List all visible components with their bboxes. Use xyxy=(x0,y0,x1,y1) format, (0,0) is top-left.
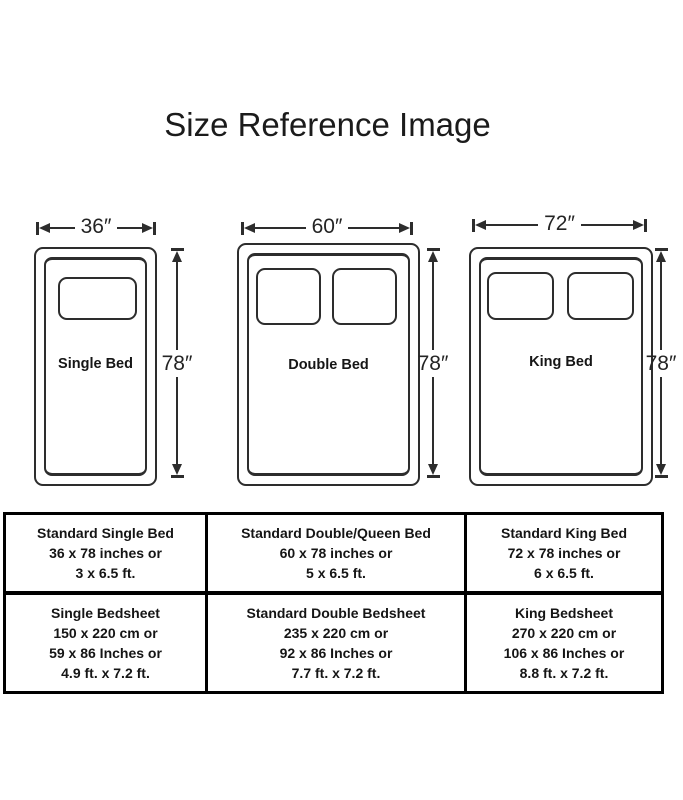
cell-line: King Bedsheet xyxy=(469,603,659,623)
arrowhead-left-icon xyxy=(39,223,50,233)
height-dimension-label-single: 78″ xyxy=(162,350,193,377)
cell-line: 7.7 ft. x 7.2 ft. xyxy=(210,663,462,683)
dimension-line xyxy=(660,377,662,465)
cell-line: 8.8 ft. x 7.2 ft. xyxy=(469,663,659,683)
table-row-bedsheets: Single Bedsheet 150 x 220 cm or 59 x 86 … xyxy=(5,593,663,693)
arrowhead-left-icon xyxy=(475,220,486,230)
size-reference-diagram: Size Reference Image 36″ 60″ 72″ Single … xyxy=(0,0,683,800)
height-dimension-arrow-king: 78″ xyxy=(643,248,679,478)
size-table: Standard Single Bed 36 x 78 inches or 3 … xyxy=(3,512,664,694)
cell-line: Standard King Bed xyxy=(469,523,659,543)
arrowhead-down-icon xyxy=(172,464,182,475)
dimension-line xyxy=(348,227,399,229)
cell-line: 106 x 86 Inches or xyxy=(469,643,659,663)
bed-name-label: Single Bed xyxy=(36,356,155,372)
table-cell-standard-king: Standard King Bed 72 x 78 inches or 6 x … xyxy=(466,514,663,594)
cell-line: 92 x 86 Inches or xyxy=(210,643,462,663)
bed-figure-king: King Bed xyxy=(469,247,653,486)
height-dimension-arrow-double: 78″ xyxy=(415,248,451,478)
pillow xyxy=(567,272,634,320)
dimension-line xyxy=(432,262,434,350)
width-dimension-arrow-single: 36″ xyxy=(36,220,156,236)
cell-line: Standard Single Bed xyxy=(8,523,203,543)
cell-line: 36 x 78 inches or xyxy=(8,543,203,563)
arrowhead-right-icon xyxy=(142,223,153,233)
bed-name-label: Double Bed xyxy=(239,357,418,373)
table-cell-double-bedsheet: Standard Double Bedsheet 235 x 220 cm or… xyxy=(207,593,466,693)
arrowhead-down-icon xyxy=(656,464,666,475)
table-cell-standard-single: Standard Single Bed 36 x 78 inches or 3 … xyxy=(5,514,207,594)
table-cell-single-bedsheet: Single Bedsheet 150 x 220 cm or 59 x 86 … xyxy=(5,593,207,693)
cell-line: 59 x 86 Inches or xyxy=(8,643,203,663)
width-dimension-label-single: 36″ xyxy=(75,216,118,237)
cell-line: 270 x 220 cm or xyxy=(469,623,659,643)
width-dimension-arrow-king: 72″ xyxy=(472,217,647,233)
width-dimension-label-king: 72″ xyxy=(538,213,581,234)
cell-line: Standard Double Bedsheet xyxy=(210,603,462,623)
table-row-beds: Standard Single Bed 36 x 78 inches or 3 … xyxy=(5,514,663,594)
pillow xyxy=(332,268,397,325)
cell-line: 3 x 6.5 ft. xyxy=(8,563,203,583)
width-dimension-label-double: 60″ xyxy=(306,216,349,237)
pillow xyxy=(256,268,321,325)
height-dimension-label-king: 78″ xyxy=(646,350,677,377)
table-cell-king-bedsheet: King Bedsheet 270 x 220 cm or 106 x 86 I… xyxy=(466,593,663,693)
dimension-line xyxy=(581,224,633,226)
cell-line: 6 x 6.5 ft. xyxy=(469,563,659,583)
height-dimension-arrow-single: 78″ xyxy=(159,248,195,478)
height-dimension-label-double: 78″ xyxy=(418,350,449,377)
arrowhead-left-icon xyxy=(244,223,255,233)
arrowhead-right-icon xyxy=(633,220,644,230)
dimension-line xyxy=(432,377,434,465)
arrow-endbar xyxy=(644,219,647,232)
cell-line: 4.9 ft. x 7.2 ft. xyxy=(8,663,203,683)
dimension-line xyxy=(660,262,662,350)
page-title: Size Reference Image xyxy=(0,106,655,144)
cell-line: Single Bedsheet xyxy=(8,603,203,623)
arrow-endbar xyxy=(153,222,156,235)
dimension-line xyxy=(50,227,75,229)
arrow-endbar xyxy=(427,475,440,478)
arrowhead-up-icon xyxy=(172,251,182,262)
bed-figure-single: Single Bed xyxy=(34,247,157,486)
dimension-line xyxy=(117,227,142,229)
cell-line: 72 x 78 inches or xyxy=(469,543,659,563)
width-dimension-arrow-double: 60″ xyxy=(241,220,413,236)
cell-line: 150 x 220 cm or xyxy=(8,623,203,643)
pillow xyxy=(487,272,554,320)
arrow-endbar xyxy=(410,222,413,235)
arrow-endbar xyxy=(655,475,668,478)
dimension-line xyxy=(255,227,306,229)
dimension-line xyxy=(176,377,178,465)
arrowhead-up-icon xyxy=(656,251,666,262)
dimension-line xyxy=(176,262,178,350)
pillow xyxy=(58,277,137,320)
cell-line: 5 x 6.5 ft. xyxy=(210,563,462,583)
cell-line: Standard Double/Queen Bed xyxy=(210,523,462,543)
cell-line: 235 x 220 cm or xyxy=(210,623,462,643)
bed-figure-double: Double Bed xyxy=(237,243,420,486)
arrow-endbar xyxy=(171,475,184,478)
bed-name-label: King Bed xyxy=(471,354,651,370)
arrowhead-right-icon xyxy=(399,223,410,233)
dimension-line xyxy=(486,224,538,226)
cell-line: 60 x 78 inches or xyxy=(210,543,462,563)
arrowhead-down-icon xyxy=(428,464,438,475)
table-cell-standard-double-queen: Standard Double/Queen Bed 60 x 78 inches… xyxy=(207,514,466,594)
arrowhead-up-icon xyxy=(428,251,438,262)
